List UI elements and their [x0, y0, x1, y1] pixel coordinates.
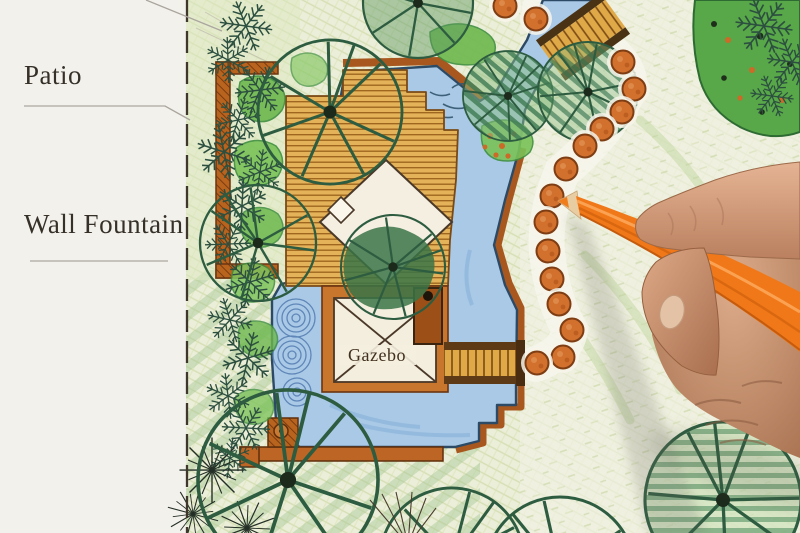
patio-label: Patio [24, 60, 82, 91]
boardwalk [444, 340, 525, 386]
landscape-plan-photo: Gazebo [0, 0, 800, 533]
gazebo-label: Gazebo [348, 345, 406, 365]
plan-drawing: Gazebo [0, 0, 800, 533]
wall-fountain-label: Wall Fountain [24, 209, 184, 240]
